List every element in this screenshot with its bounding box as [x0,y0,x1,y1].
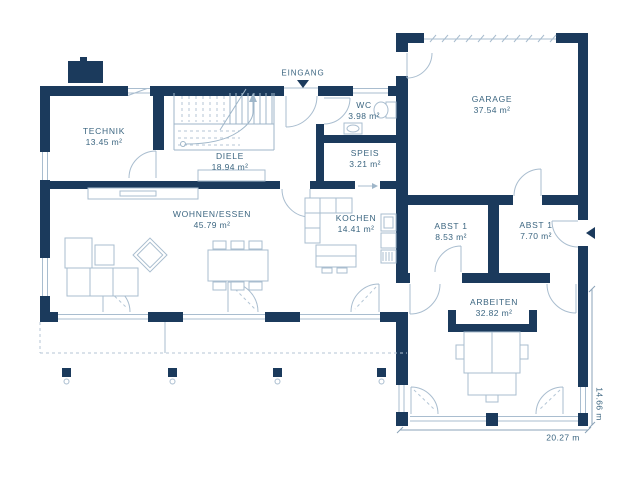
entrance-door [286,96,317,127]
dining-table [208,241,268,290]
room-label-wc: WC 3.98 m² [348,100,380,122]
kitchen-counter [305,198,396,273]
room-label-technik: TECHNIK 13.45 m² [83,126,125,148]
room-label-diele: DIELE 18.94 m² [212,151,249,173]
garage-door [424,35,556,42]
garage-side-door [407,53,432,78]
room-label-abst1-left: ABST 1 8.53 m² [434,221,467,243]
floor-plan: EINGANG TECHNIK 13.45 m² DIELE 18.94 m² … [0,0,640,480]
chimney [68,57,103,83]
arbeiten-furniture [456,332,528,402]
furniture [65,102,528,402]
abst1-door [435,246,461,272]
entry-arrow-icon [586,227,595,239]
room-label-wohnen-essen: WOHNEN/ESSEN 45.79 m² [173,209,251,231]
arbeiten-top-door [547,284,576,313]
room-label-speis: SPEIS 3.21 m² [349,148,381,170]
room-label-arbeiten: ARBEITEN 32.82 m² [470,297,518,319]
room-label-abst1-right: ABST 1 7.70 m² [519,220,552,242]
garage-house-door [514,169,541,196]
staircase [174,89,274,150]
arbeiten-south-door-right [536,387,563,414]
corridor-arbeiten-door [410,284,440,314]
technik-door [129,151,156,178]
abst1b-exterior-door [552,221,578,247]
terrace-door-3 [351,284,379,312]
dimension-depth-label: 14.66 m [594,387,605,421]
speis-passage-arrow-icon [358,183,378,189]
arbeiten-south-door-left [411,387,438,414]
sideboard-living [88,188,198,199]
entrance-direction-icon [297,80,309,88]
terrace-posts [62,368,386,384]
sofa-group [65,238,167,296]
room-label-kochen: KOCHEN 14.41 m² [336,213,377,235]
entrance-label: EINGANG [281,68,324,79]
terrace [40,322,407,384]
room-label-garage: GARAGE 37.54 m² [472,94,513,116]
wc-door [324,98,350,124]
dimension-width-label: 20.27 m [546,433,580,444]
